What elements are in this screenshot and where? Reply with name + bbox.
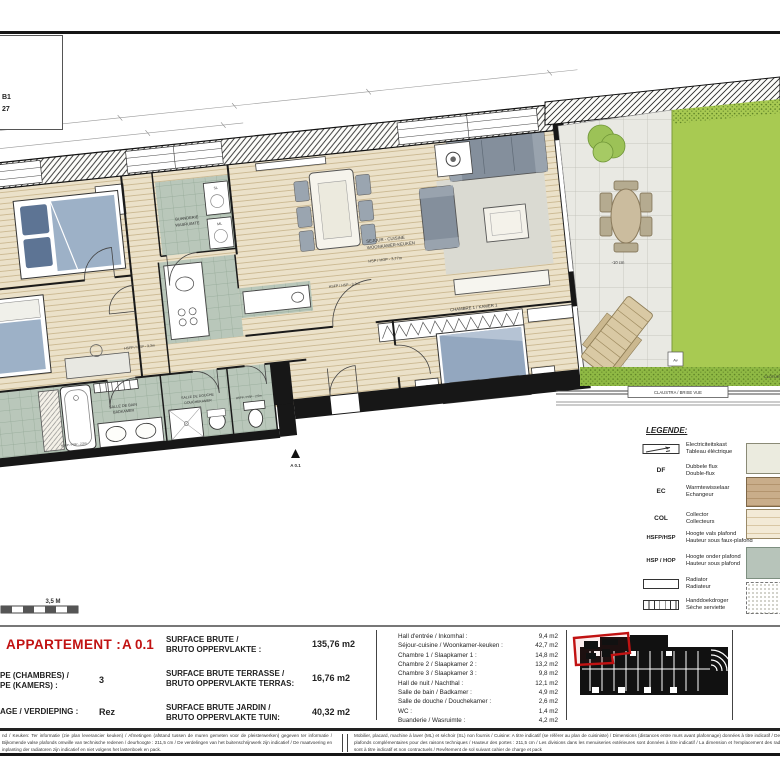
sheet-bottom-rule	[0, 753, 780, 756]
surface-jardin-value: 40,32 m2	[312, 707, 350, 717]
legend-label-fr: Hauteur sous faux-plafond	[686, 538, 753, 544]
legend-label-fr: Sèche serviette	[686, 605, 725, 611]
finish-swatch-wood	[746, 477, 780, 507]
dryer-label: SL	[213, 186, 218, 190]
entrance-marker-label: A 0.1	[290, 463, 301, 468]
legend-label-fr: Double-flux	[686, 471, 715, 477]
surface-brute-label: SURFACE BRUTE /BRUTO OPPERVLAKTE :	[166, 635, 261, 654]
garden-marker-label: Av	[673, 358, 678, 363]
legend-code: COL	[636, 515, 686, 522]
bed-chambre3	[0, 295, 51, 380]
cloture-label: CLOTURE	[764, 375, 780, 379]
surface-brute-value: 135,76 m2	[312, 639, 355, 649]
table-row: Hall de nuit / Nachthal :12,1 m2	[398, 679, 558, 688]
legend-code: HSP / HOP	[636, 558, 686, 564]
floor-label: AGE / VERDIEPING :	[0, 707, 78, 717]
sheet-corner-box: B1 27	[0, 35, 63, 130]
table-row: WC :1,4 m2	[398, 707, 558, 716]
disclaimer-divider	[342, 734, 348, 752]
legend-label-fr: Collecteurs	[686, 519, 714, 525]
legend-label-fr: Echangeur	[686, 492, 714, 498]
sheet-top-rule	[0, 31, 780, 34]
title-block-divider-1	[376, 630, 377, 720]
key-plan	[572, 631, 728, 717]
legend-code: HSFP/HSP	[636, 535, 686, 541]
table-row: Salle de bain / Badkamer :4,9 m2	[398, 688, 558, 697]
bed-chambre2	[13, 190, 126, 279]
towel-dryer-icon	[643, 600, 679, 610]
corner-code-2: 27	[2, 106, 10, 113]
floor-value: Rez	[99, 707, 115, 717]
legend-label-nl: Warmtewisselaar	[686, 485, 729, 491]
washer-label: ML	[217, 222, 222, 227]
scale-bar-label: 3,5 M	[45, 599, 60, 605]
room-areas-table: Hall d'entrée / Inkomhal :9,4 m2 Séjour-…	[398, 632, 558, 725]
legend-label-fr: Tableau éléctrique	[686, 449, 732, 455]
type-label: PE (CHAMBRES) /PE (KAMERS) :	[0, 671, 69, 690]
title-block-bottom-rule	[0, 728, 780, 731]
apartment-plan: SL ML	[0, 101, 614, 473]
legend-title: LEGENDE:	[646, 426, 687, 435]
surface-jardin-label: SURFACE BRUTE JARDIN /BRUTO OPPERVLAKTE …	[166, 703, 280, 722]
legend-label-nl: Hoogte onder plafond	[686, 554, 741, 560]
garden	[672, 99, 780, 368]
finish-swatch-tile	[746, 547, 780, 579]
entrance-marker: A 0.1	[290, 449, 301, 468]
disclaimer-dutch: nd / Keuken: Ter informatie (zie plan le…	[2, 733, 332, 754]
table-row: Hall d'entrée / Inkomhal :9,4 m2	[398, 632, 558, 641]
table-row: Séjour-cuisine / Woonkamer-keuken :42,7 …	[398, 641, 558, 650]
apartment-number: A 0.1	[122, 637, 154, 652]
electrical-panel-icon	[636, 443, 686, 455]
finish-swatch-cream	[746, 443, 780, 474]
corner-code-1: B1	[2, 94, 11, 101]
scale-bar: 3,5 M	[1, 599, 78, 613]
legend-label-nl: Radiator	[686, 577, 708, 583]
terrace-level-label: -10 cm	[612, 260, 625, 265]
legend-code: DF	[636, 467, 686, 474]
legend-label-fr: Radiateur	[686, 584, 711, 590]
table-row: Chambre 2 / Slaapkamer 2 :13,2 m2	[398, 660, 558, 669]
legend-label-nl: Collector	[686, 512, 708, 518]
surface-terrasse-value: 16,76 m2	[312, 673, 350, 683]
legend-label-fr: Hauteur sous plafond	[686, 561, 740, 567]
claustra: CLAUSTRA / BRISE VUE	[556, 387, 780, 406]
table-row: Buanderie / Wasruimte :4,2 m2	[398, 716, 558, 725]
hedge-texture	[580, 367, 780, 386]
title-block-divider-2	[566, 630, 567, 720]
radiator-icon	[643, 579, 679, 589]
floor-plan-sheet: SL ML	[0, 0, 780, 780]
finish-swatch-dotted	[746, 582, 780, 614]
legend-label-nl: Dubbele flux	[686, 464, 718, 470]
table-row: Salle de douche / Douchekamer :2,6 m2	[398, 697, 558, 706]
surface-terrasse-label: SURFACE BRUTE TERRASSE /BRUTO OPPERVLAKT…	[166, 669, 294, 688]
title-block-divider-3	[732, 630, 733, 720]
apartment-label: APPARTEMENT :	[6, 637, 121, 652]
type-value: 3	[99, 675, 104, 685]
disclaimer-french: Mobilier, placard, machine à laver (ML) …	[354, 733, 780, 754]
table-row: Chambre 1 / Slaapkamer 1 :14,8 m2	[398, 651, 558, 660]
legend-label-nl: Electriciteitskast	[686, 442, 727, 448]
table-row: Chambre 3 / Slaapkamer 3 :9,8 m2	[398, 669, 558, 678]
finish-swatch-parquet	[746, 509, 780, 539]
legend-label-nl: Hoogte vals plafond	[686, 531, 736, 537]
legend-code: EC	[636, 488, 686, 495]
legend-label-nl: Handdoekdroger	[686, 598, 728, 604]
claustra-label: CLAUSTRA / BRISE VUE	[654, 390, 702, 395]
